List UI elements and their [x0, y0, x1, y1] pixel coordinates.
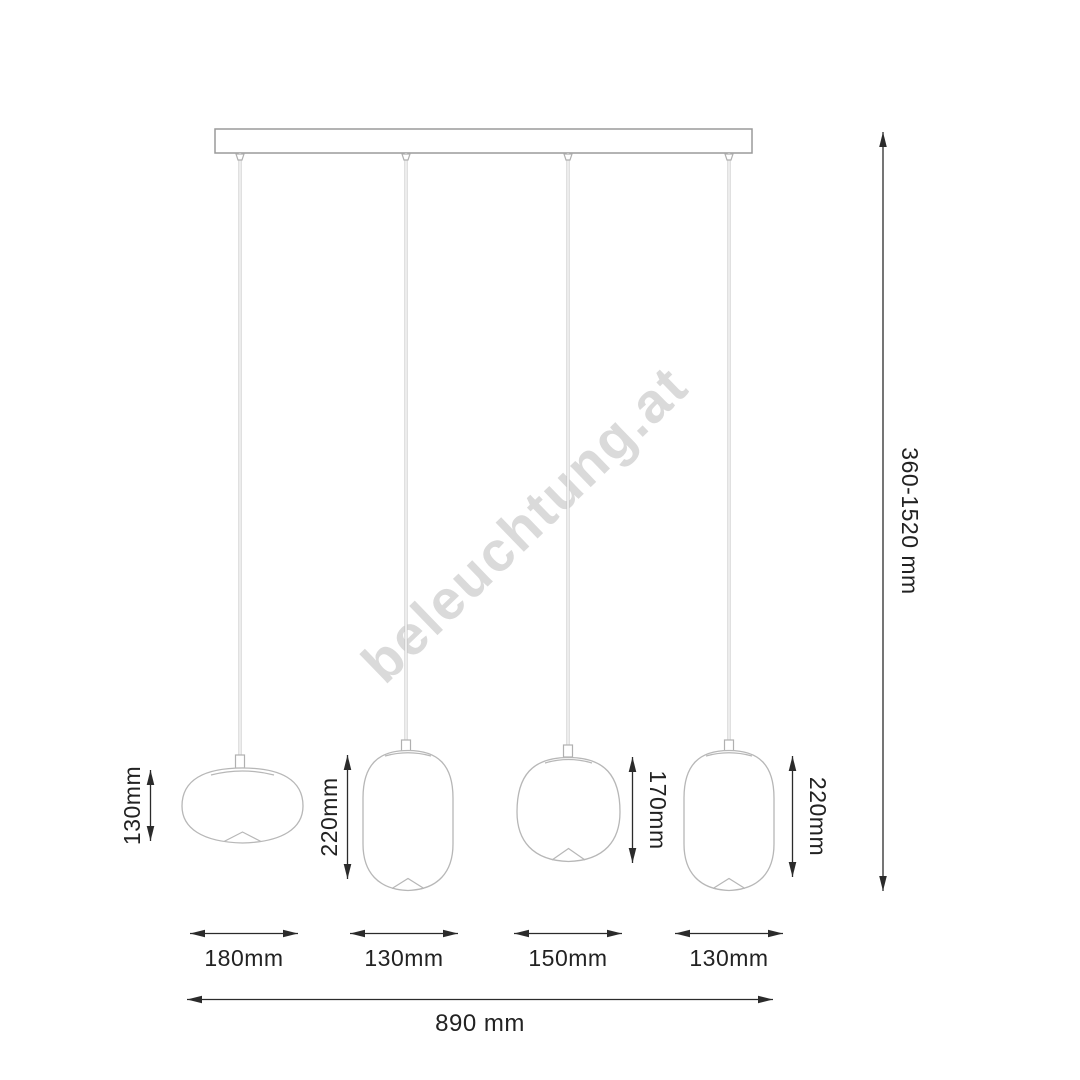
lamp-socket-3: [564, 745, 573, 757]
width-label-4: 130mm: [689, 945, 768, 971]
width-label-2: 130mm: [364, 945, 443, 971]
pendant-light-dimension-diagram: beleuchtung.at: [0, 0, 1080, 1080]
cord-connector-2: [402, 154, 410, 160]
lampshade-2: [363, 751, 453, 891]
height-label-1: 130mm: [119, 766, 145, 845]
width-label-3: 150mm: [528, 945, 607, 971]
total-width-label: 890 mm: [435, 1010, 525, 1037]
cord-connector-3: [564, 154, 572, 160]
width-dimensions: 180mm 130mm 150mm 130mm: [190, 934, 783, 972]
width-label-1: 180mm: [204, 945, 283, 971]
lampshade-4: [684, 751, 774, 891]
height-label-2: 220mm: [316, 777, 342, 856]
suspension-height-label: 360-1520 mm: [897, 447, 923, 594]
cord-connectors: [236, 154, 733, 160]
lampshade-1-group: [182, 768, 303, 843]
lampshade-3-group: [517, 758, 620, 862]
lamp-socket-1: [236, 755, 245, 768]
suspension-height-dimension: 360-1520 mm: [883, 132, 923, 891]
lampshade-3: [517, 758, 620, 862]
height-label-4: 220mm: [805, 777, 831, 856]
lampshade-2-group: [363, 751, 453, 891]
cord-connector-4: [725, 154, 733, 160]
cord-connector-1: [236, 154, 244, 160]
total-width-dimension: 890 mm: [187, 1000, 773, 1038]
watermark-text: beleuchtung.at: [349, 353, 699, 694]
lampshade-4-group: [684, 751, 774, 891]
dimension-diagram-page: beleuchtung.at: [0, 0, 1080, 1080]
lamp-sockets: [236, 740, 734, 768]
ceiling-mount-bar: [215, 129, 752, 153]
pendant-cords: [240, 153, 729, 756]
height-label-3: 170mm: [645, 770, 671, 849]
